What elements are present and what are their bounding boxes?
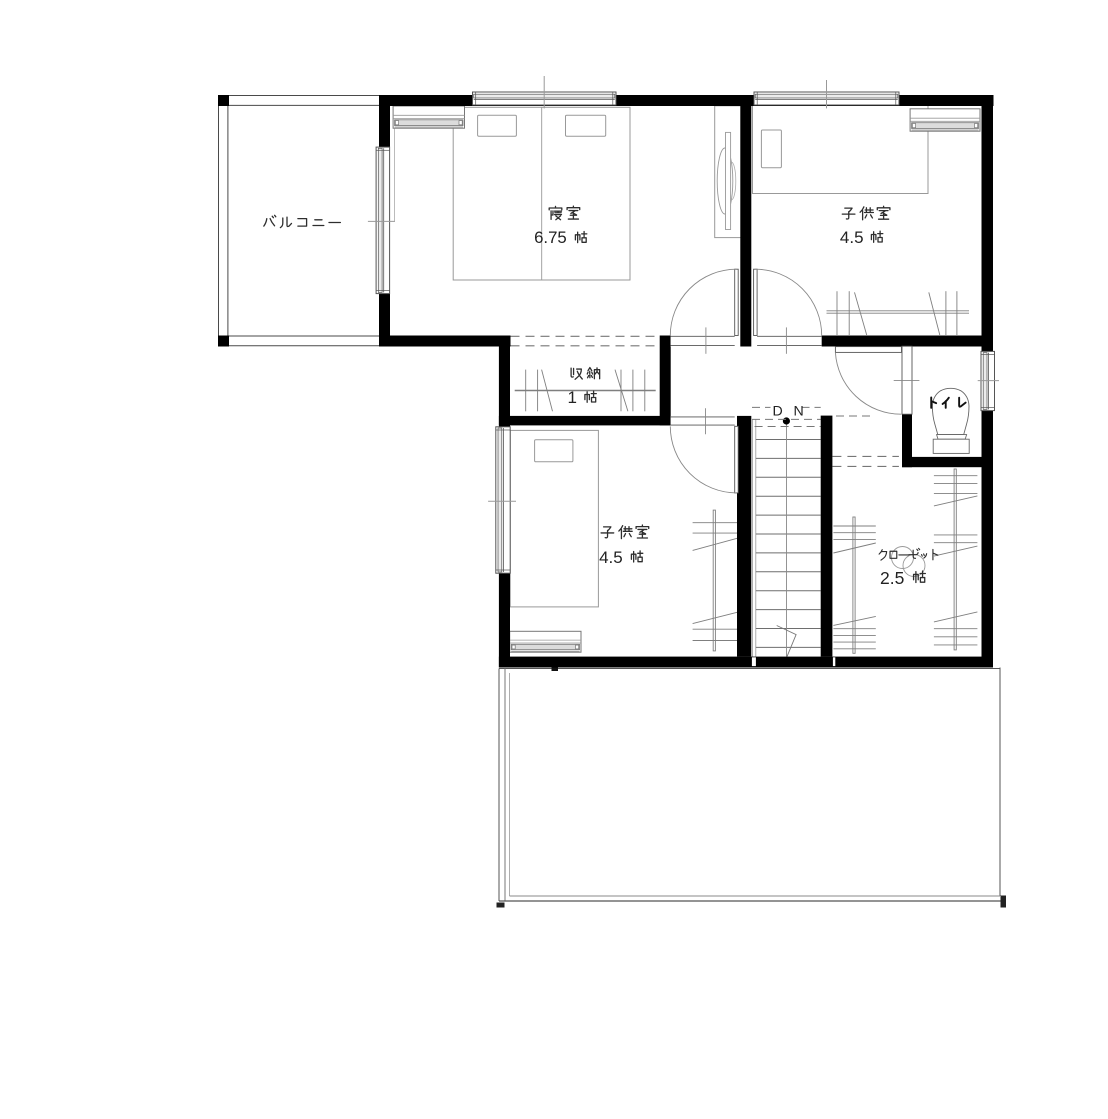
svg-text:D N: D N (773, 404, 808, 420)
svg-text:1: 1 (568, 388, 577, 407)
svg-text:4.5: 4.5 (840, 228, 864, 247)
svg-text:2.5: 2.5 (880, 568, 904, 588)
svg-text:6.75: 6.75 (534, 228, 567, 247)
svg-text:4.5: 4.5 (599, 548, 623, 567)
